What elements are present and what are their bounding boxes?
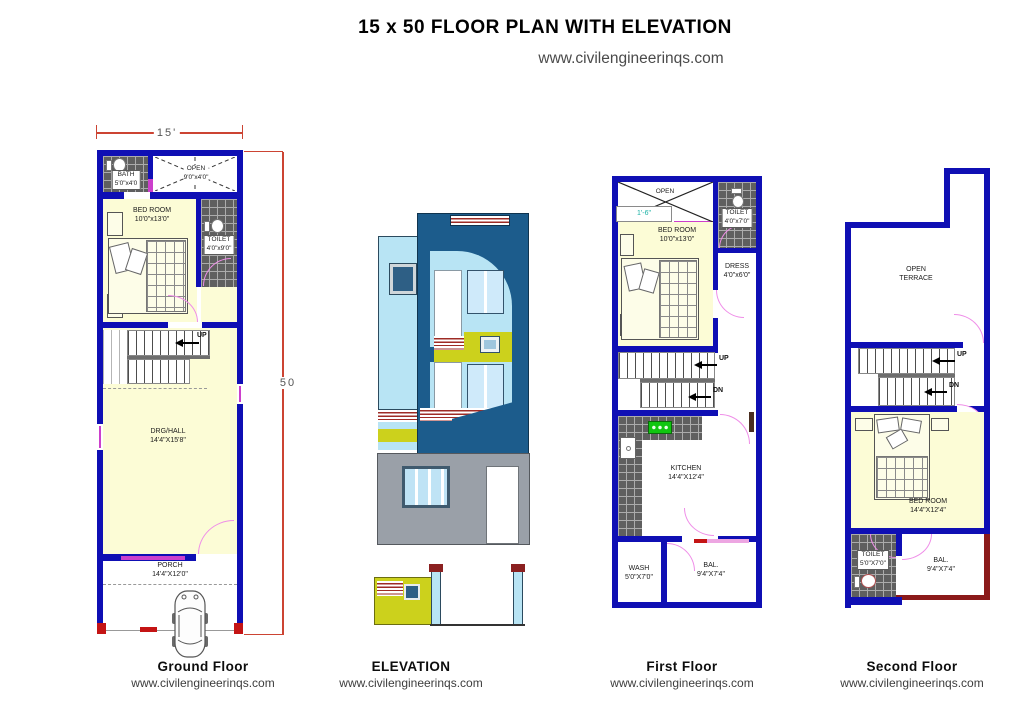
sf-toilet-name: TOILET: [860, 551, 886, 560]
el-left-railing: [378, 410, 418, 422]
el-caption: ELEVATION: [372, 659, 451, 674]
ff-sink-icon: [620, 437, 636, 459]
el-gate-pillar-left: [431, 571, 441, 625]
ff-kitchen-door-leaf: [749, 412, 754, 432]
ff-toilet-name: TOILET: [725, 209, 750, 218]
gf-pillar-right: [234, 623, 243, 634]
sf-bal-label: BAL. 9'4"X7'4": [927, 556, 955, 575]
gf-bath-name: BATH: [115, 171, 138, 180]
gf-pillar-left: [97, 623, 106, 634]
gf-bath-open-wall: [148, 150, 153, 179]
gf-entry-door-gap: [196, 554, 237, 561]
ff-kitchen-size: 14'4"X12'4": [668, 473, 704, 482]
dim-tick-bottom: [244, 634, 283, 635]
gf-stairs-up-label: UP: [197, 332, 207, 339]
gf-toilet-name: TOILET: [207, 236, 232, 245]
dim-line-height: [282, 152, 284, 635]
el-gate-cap-left: [429, 564, 443, 572]
el-triple-window: [402, 466, 450, 508]
gf-porch-window: [121, 556, 185, 560]
gf-open-label: OPEN 9'0"x4'0": [184, 165, 209, 183]
ff-kitchen-door-arc: [720, 414, 750, 444]
gf-bath-door-strip: [148, 179, 153, 193]
gf-bedroom-size: 10'0"x13'0": [133, 215, 171, 224]
ff-bedroom-label: BED ROOM 10'0"x13'0": [658, 226, 696, 245]
sf-bedroom-size: 14'4"X12'4": [909, 506, 947, 515]
el-balcony-yellow-strip: [434, 350, 512, 362]
el-lower-window-white: [434, 362, 462, 410]
gf-toilet-label: TOILET 4'0"x9'0": [204, 235, 235, 255]
ff-wall-right: [756, 176, 762, 608]
gf-window-left: [99, 426, 101, 448]
dim-tick-top: [244, 151, 283, 152]
sf-bal-right-rail: [984, 534, 990, 600]
sf-stairs-down-label: DN: [949, 382, 959, 389]
gf-hall-size: 14'4"X15'8": [150, 436, 186, 445]
ff-kitchen-counter-left: [618, 416, 642, 538]
el-upper-window-panes: [467, 270, 504, 314]
car-icon: [171, 589, 209, 659]
gf-bath-door-gap: [124, 192, 150, 199]
ff-stove-icon: [648, 421, 672, 434]
gf-band-wall: [97, 192, 243, 199]
ff-caption-url: www.civilengineerinqs.com: [610, 676, 753, 690]
sf-wall-right: [984, 168, 990, 534]
gf-open-name: OPEN: [184, 165, 209, 174]
ff-dress-door-arc: [716, 290, 744, 318]
sf-bal-bottom-rail: [896, 595, 990, 600]
gf-bath-label: BATH 5'0"x4'0: [112, 170, 141, 190]
sf-down-arrow-icon: [932, 391, 947, 393]
gf-bedroom-room-ext: [201, 287, 237, 323]
el-compound-plaque: [404, 584, 420, 600]
ff-caption: First Floor: [646, 659, 717, 674]
ff-wash-size: 5'0"X7'0": [625, 573, 653, 582]
el-compound-vent: [377, 581, 403, 596]
ff-wash-name: WASH: [625, 564, 653, 573]
el-left-wing: [378, 236, 418, 410]
ff-dress-size: 4'0"x6'0": [724, 271, 751, 280]
gf-toilet-size: 4'0"x9'0": [207, 245, 232, 254]
dim-width-label: 15': [154, 127, 180, 139]
el-left-band-blue1: [378, 422, 418, 429]
sf-stairs-up-label: UP: [957, 351, 967, 358]
ff-bedroom-name: BED ROOM: [658, 226, 696, 235]
floor-plan-sheet: 15 x 50 FLOOR PLAN WITH ELEVATION www.ci…: [0, 0, 1024, 724]
sf-toilet-label: TOILET 5'0"X7'0": [857, 550, 889, 570]
ff-bal-door-arc: [684, 508, 714, 536]
sf-up-arrow-icon: [940, 360, 955, 362]
ff-bal-rail-red: [694, 539, 707, 543]
gf-stairs-dash: [103, 388, 207, 389]
ff-down-arrow-icon: [696, 396, 711, 398]
gf-porch-name: PORCH: [152, 561, 188, 570]
gf-pillar-mid: [140, 627, 157, 632]
el-balcony-window: [481, 337, 499, 352]
ff-wash-label: WASH 5'0"X7'0": [625, 564, 653, 583]
sf-terrace-label: OPEN TERRACE: [899, 265, 932, 284]
el-gate-pillar-right: [513, 571, 523, 625]
el-caption-url: www.civilengineerinqs.com: [339, 676, 482, 690]
ff-bal-label: BAL. 9'4"X7'4": [697, 561, 725, 580]
gf-porch-open-line: [106, 630, 234, 631]
ff-stairs-up-label: UP: [719, 355, 729, 362]
gf-stairs-flight-2: [127, 359, 190, 384]
sf-bal-name: BAL.: [927, 556, 955, 565]
ff-open-name: OPEN: [656, 188, 674, 197]
gf-bath-size: 5'0"x4'0: [115, 180, 138, 189]
el-left-band-yellow: [378, 429, 418, 442]
ff-toilet-size: 4'0"x7'0": [725, 218, 750, 227]
sf-tab-left-wall: [944, 168, 950, 228]
ff-wall-bottom: [612, 602, 762, 608]
ff-dress-label: DRESS 4'0"x6'0": [724, 262, 751, 281]
ff-stairs-flight-2: [640, 382, 715, 408]
page-title: 15 x 50 FLOOR PLAN WITH ELEVATION: [358, 17, 732, 39]
el-door: [486, 466, 519, 544]
el-left-band-blue2: [378, 442, 418, 450]
gf-porch-size: 14'4"X12'0": [152, 570, 188, 579]
dim-tick-right: [242, 125, 243, 139]
gf-bedroom-label: BED ROOM 10'0"x13'0": [133, 206, 171, 225]
gf-up-arrow-icon: [183, 342, 199, 344]
sf-caption-url: www.civilengineerinqs.com: [840, 676, 983, 690]
el-ground-line: [430, 624, 525, 626]
el-lower-window-panes: [467, 364, 504, 410]
sf-wall-bottom: [845, 597, 902, 605]
ff-ledge-label: 1'-6": [637, 210, 651, 217]
sf-bedroom-label: BED ROOM 14'4"X12'4": [909, 497, 947, 516]
sf-wall-top: [845, 222, 950, 228]
gf-caption-url: www.civilengineerinqs.com: [131, 676, 274, 690]
sf-toilet-size: 5'0"X7'0": [860, 560, 886, 569]
gf-porch-label: PORCH 14'4"X12'0": [152, 561, 188, 580]
el-gate-cap-right: [511, 564, 525, 572]
gf-hall-label: DRG/HALL 14'4"X15'8": [150, 427, 186, 446]
el-left-window: [390, 264, 416, 294]
ff-open-label: OPEN: [656, 188, 674, 197]
gf-bedroom-name: BED ROOM: [133, 206, 171, 215]
ff-bal-entry-arc: [667, 543, 695, 571]
sf-terrace-door-arc: [954, 314, 984, 343]
ff-bal-name: BAL.: [697, 561, 725, 570]
sf-caption: Second Floor: [866, 659, 957, 674]
sf-bal-size: 9'4"X7'4": [927, 565, 955, 574]
ff-kitchen-label: KITCHEN 14'4"X12'4": [668, 464, 704, 483]
gf-caption: Ground Floor: [157, 659, 248, 674]
ff-bedroom-size: 10'0"x13'0": [658, 235, 696, 244]
sf-bedroom-name: BED ROOM: [909, 497, 947, 506]
dim-tick-left: [96, 125, 97, 139]
gf-porch-dash: [103, 584, 237, 585]
gf-window-right: [239, 386, 241, 402]
sf-terrace-name2: TERRACE: [899, 274, 932, 283]
dim-height-label: 50: [277, 377, 299, 389]
ff-up-arrow-icon: [702, 364, 717, 366]
gf-open-size: 9'0"x4'0": [184, 174, 209, 183]
page-website: www.civilengineerinqs.com: [538, 50, 723, 68]
gf-stairs-ghost: [103, 330, 127, 384]
ff-dress-name: DRESS: [724, 262, 751, 271]
ff-kitchen-name: KITCHEN: [668, 464, 704, 473]
el-balcony-railing: [434, 336, 464, 350]
ff-bal-size: 9'4"X7'4": [697, 570, 725, 579]
ff-toilet-label: TOILET 4'0"x7'0": [722, 208, 753, 228]
ff-bal-rail-pink: [707, 539, 749, 543]
el-parapet-vent: [450, 215, 510, 226]
sf-terrace-name: OPEN: [899, 265, 932, 274]
ff-toilet-bottom-wall: [718, 248, 756, 253]
el-upper-window-white: [434, 270, 462, 338]
ff-stairs-down-label: DN: [713, 387, 723, 394]
gf-hall-name: DRG/HALL: [150, 427, 186, 436]
